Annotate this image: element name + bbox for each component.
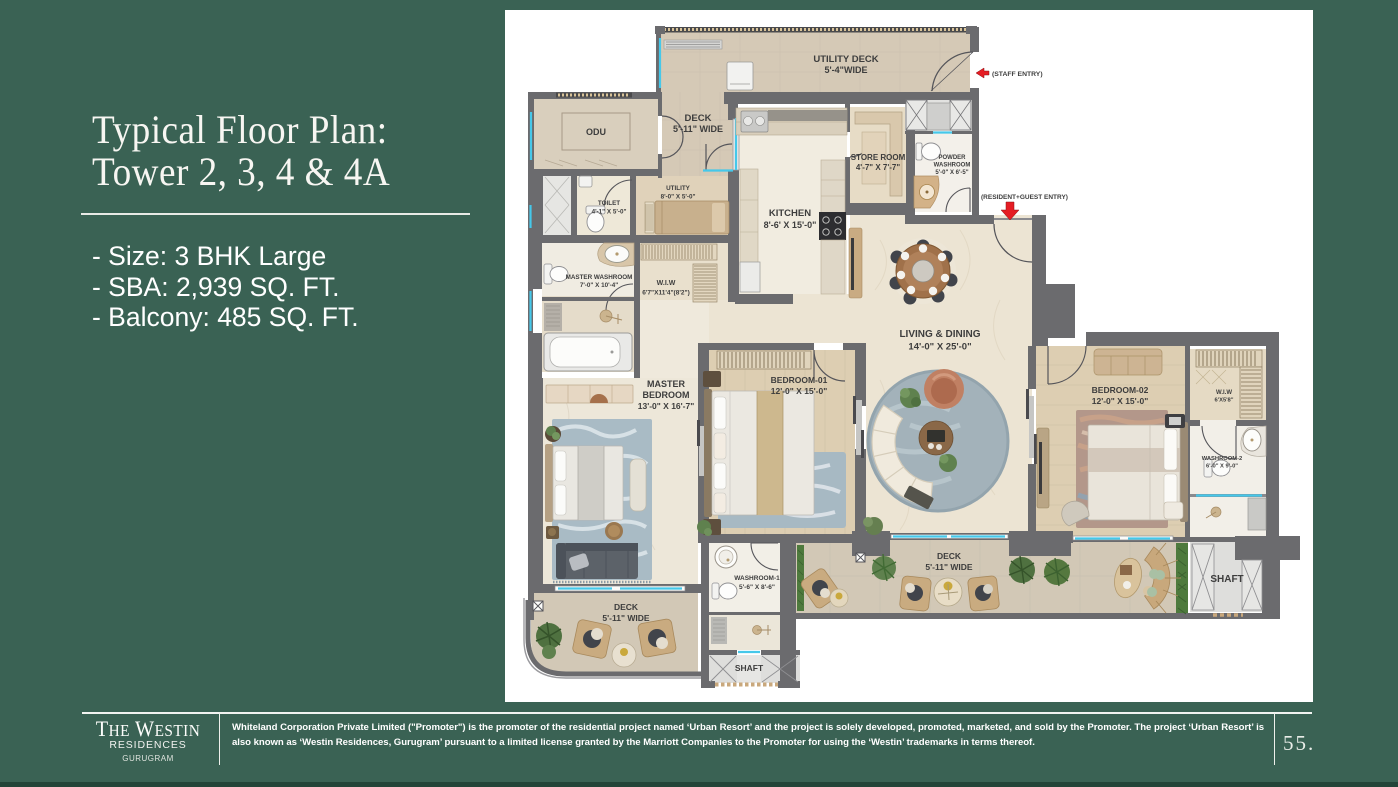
svg-text:SHAFT: SHAFT <box>735 663 764 673</box>
svg-text:LIVING & DINING: LIVING & DINING <box>899 329 980 340</box>
svg-text:12'-0" X 15'-0": 12'-0" X 15'-0" <box>1092 396 1149 406</box>
svg-text:UTILITY: UTILITY <box>666 185 691 192</box>
svg-text:TOILET: TOILET <box>598 200 620 207</box>
svg-text:4'-7" X 7'-7": 4'-7" X 7'-7" <box>856 163 901 172</box>
svg-text:ODU: ODU <box>586 127 606 137</box>
svg-text:6'7"X11'4"(8'2"): 6'7"X11'4"(8'2") <box>642 290 690 297</box>
svg-text:4'-1" X 5'-0": 4'-1" X 5'-0" <box>592 209 627 216</box>
svg-text:UTILITY DECK: UTILITY DECK <box>813 54 878 65</box>
svg-text:WASHROOM: WASHROOM <box>934 163 971 169</box>
svg-text:DECK: DECK <box>685 113 712 124</box>
svg-text:SHAFT: SHAFT <box>1210 574 1243 585</box>
svg-text:MASTER: MASTER <box>647 379 686 389</box>
svg-text:(STAFF ENTRY): (STAFF ENTRY) <box>992 71 1043 78</box>
svg-text:6'X5'8": 6'X5'8" <box>1214 398 1233 404</box>
svg-text:5'-11" WIDE: 5'-11" WIDE <box>673 124 723 134</box>
svg-text:DECK: DECK <box>937 551 962 561</box>
svg-text:MASTER WASHROOM: MASTER WASHROOM <box>566 274 633 281</box>
svg-text:WASHROOM-1: WASHROOM-1 <box>734 575 780 582</box>
svg-text:5'-11" WIDE: 5'-11" WIDE <box>602 613 649 623</box>
svg-text:POWDER: POWDER <box>939 155 967 161</box>
svg-text:5'-11" WIDE: 5'-11" WIDE <box>925 562 972 572</box>
svg-text:7'-0" X 10'-4": 7'-0" X 10'-4" <box>580 282 618 289</box>
svg-text:13'-0" X 16'-7": 13'-0" X 16'-7" <box>638 401 695 411</box>
svg-text:DECK: DECK <box>614 602 639 612</box>
svg-text:5'-6" X 8'-6": 5'-6" X 8'-6" <box>739 584 775 591</box>
svg-text:STORE ROOM: STORE ROOM <box>851 153 906 162</box>
svg-text:12'-0" X 15'-0": 12'-0" X 15'-0" <box>771 386 828 396</box>
svg-text:5'-0" X 6'-5": 5'-0" X 6'-5" <box>935 170 968 176</box>
svg-text:BEDROOM: BEDROOM <box>643 390 690 400</box>
svg-text:5'-4"WIDE: 5'-4"WIDE <box>825 65 868 75</box>
svg-text:8'-0" X 5'-0": 8'-0" X 5'-0" <box>661 194 696 201</box>
svg-text:(RESIDENT+GUEST ENTRY): (RESIDENT+GUEST ENTRY) <box>981 194 1068 201</box>
svg-text:W.I.W: W.I.W <box>657 280 676 287</box>
svg-text:14'-0" X 25'-0": 14'-0" X 25'-0" <box>908 342 971 353</box>
svg-text:WASHROOM-2: WASHROOM-2 <box>1202 456 1243 462</box>
svg-text:8'-6' X 15'-0": 8'-6' X 15'-0" <box>764 220 817 230</box>
svg-text:W.I.W: W.I.W <box>1216 390 1232 396</box>
svg-text:6'-0" X 9'-0": 6'-0" X 9'-0" <box>1206 464 1238 470</box>
svg-text:BEDROOM-02: BEDROOM-02 <box>1092 385 1149 395</box>
svg-text:BEDROOM-01: BEDROOM-01 <box>771 375 828 385</box>
svg-text:KITCHEN: KITCHEN <box>769 208 811 219</box>
